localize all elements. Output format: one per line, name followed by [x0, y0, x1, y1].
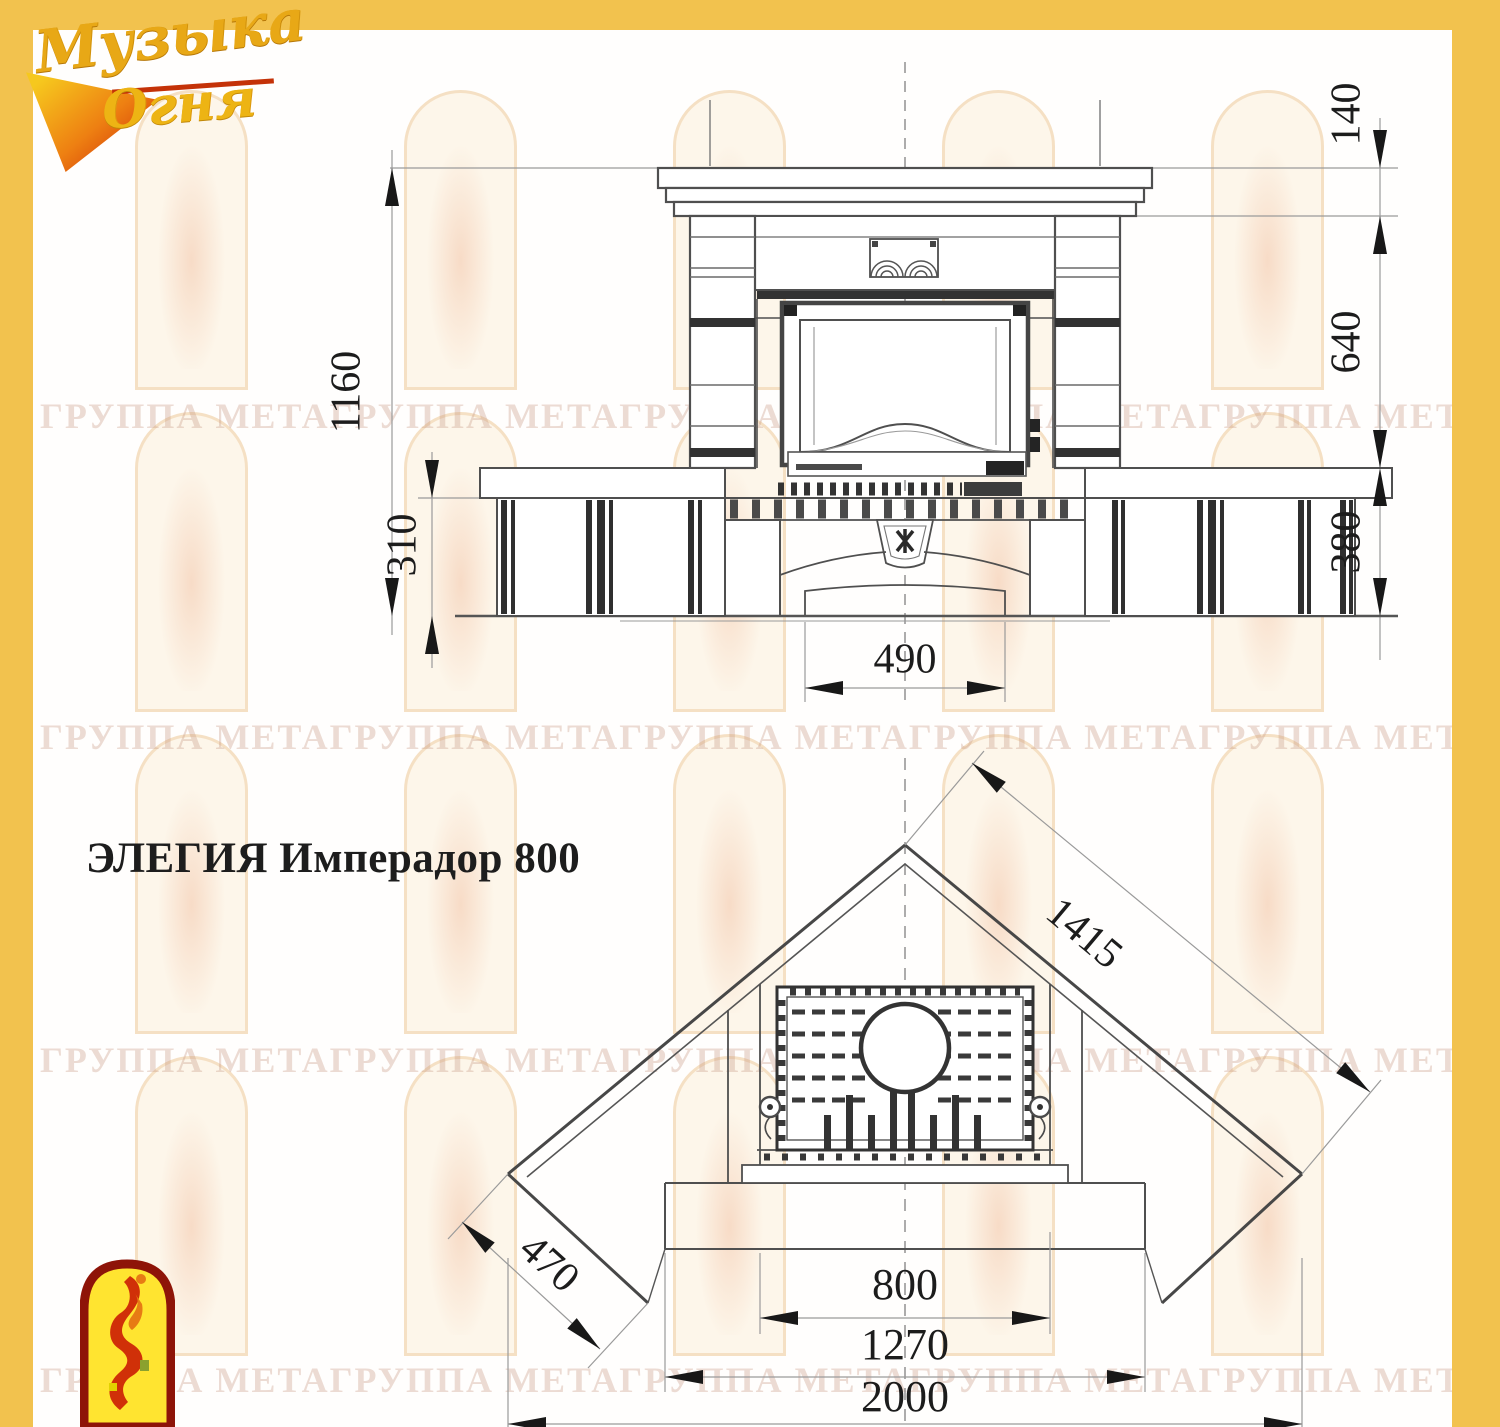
dim-hearth-width: 1270	[861, 1320, 949, 1369]
plan-view: 800 1270 2000 1415 470	[448, 751, 1381, 1427]
front-elevation-view: 1160 310 490 140 640 380	[324, 62, 1398, 705]
dim-bench-base-height: 310	[380, 514, 426, 577]
brand-logo-word1: Музыка	[31, 0, 309, 86]
brand-logo-word2: Огня	[100, 67, 259, 141]
model-title: ЭЛЕГИЯ Имперадор 800	[86, 834, 580, 883]
brand-logo: Музыка Огня	[0, 0, 300, 200]
dim-insert-width: 800	[872, 1260, 938, 1309]
dim-mantel-height: 140	[1324, 83, 1370, 146]
dim-total-height: 1160	[324, 351, 370, 433]
fireplace-technical-drawing: 1160 310 490 140 640 380	[0, 0, 1500, 1427]
dim-firebox-zone-height: 640	[1324, 311, 1370, 374]
dim-bench-height: 380	[1324, 511, 1370, 574]
dim-total-width: 2000	[861, 1372, 949, 1421]
dim-pedestal-width: 490	[874, 637, 937, 683]
page: ГРУППА МЕТАГРУППА МЕТАГРУППА МЕТАГРУППА …	[0, 0, 1500, 1427]
